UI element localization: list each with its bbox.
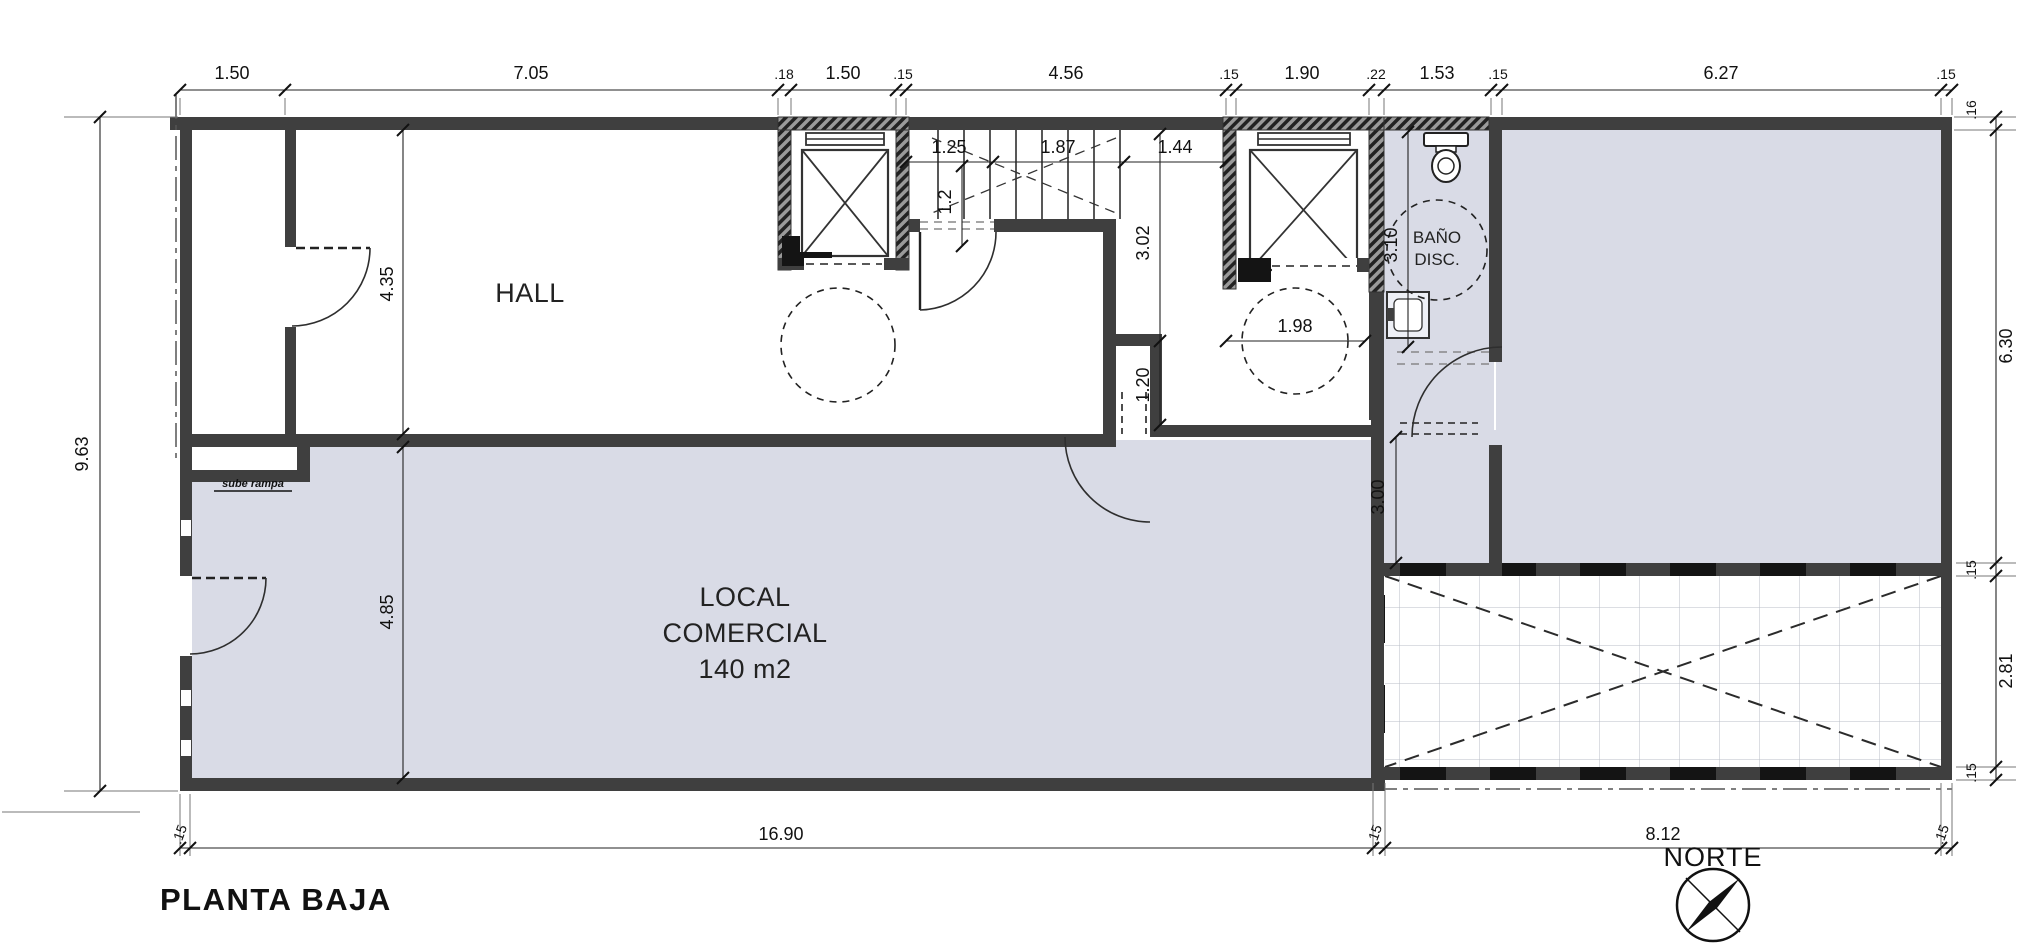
elevator2-top-wall <box>1223 117 1384 130</box>
left-wall <box>180 117 192 791</box>
dim-label: 1.50 <box>825 63 860 83</box>
dim-label: .15 <box>1936 66 1956 82</box>
dim-label: 7.05 <box>513 63 548 83</box>
local-entry-opening <box>180 576 192 656</box>
turning-circle-hall <box>781 288 895 402</box>
dimensions-left: 9.63 <box>2 111 178 812</box>
elevator2-bottom-stub <box>1357 258 1369 272</box>
stair-door-opening <box>920 219 994 232</box>
hall-door-swing <box>292 248 370 326</box>
stair-bottom-wall <box>994 219 1116 232</box>
top-wall <box>170 117 1952 130</box>
elevator1-bottom-stub-right <box>884 258 909 270</box>
elevator-1 <box>778 133 909 270</box>
dimensions-top: 1.50 7.05 .18 1.50 .15 4.56 .15 1.90 .22… <box>174 63 1958 115</box>
pocket-step-wall-h <box>1103 334 1162 346</box>
dim-label: 16.90 <box>758 824 803 844</box>
dim-label: 4.85 <box>377 594 397 629</box>
dim-label: 9.63 <box>72 436 92 471</box>
dim-label: 1.25 <box>931 137 966 157</box>
north-indicator: NORTE <box>1663 842 1762 941</box>
north-label: NORTE <box>1663 842 1762 872</box>
hall-partition-upper <box>285 130 296 247</box>
hall-partition-lower <box>285 327 296 434</box>
elevator1-right-wall <box>896 117 909 270</box>
stair-door-swing <box>920 232 996 310</box>
bath-right-wall-upper <box>1489 130 1502 362</box>
dim-label: 1.44 <box>1157 137 1192 157</box>
step-annotation: sube rampa <box>222 478 284 490</box>
bath-right-wall-lower <box>1489 445 1502 576</box>
elevator2-counterweight <box>1238 258 1271 282</box>
elevator1-top-wall <box>778 117 909 130</box>
dim-label: 1.90 <box>1284 63 1319 83</box>
stair-bottom-wall-stub <box>909 219 920 232</box>
bath-top-wall <box>1384 117 1489 130</box>
dim-label: .15 <box>1963 763 1979 783</box>
hall-local-boundary-wall <box>180 434 1116 447</box>
elevator2-opening <box>1272 258 1357 272</box>
dim-label: 1.87 <box>1040 137 1075 157</box>
dim-label: 8.12 <box>1645 824 1680 844</box>
dim-label: .22 <box>1366 66 1386 82</box>
room-label-local-1: LOCAL <box>699 582 790 612</box>
bottom-wall <box>180 778 1385 791</box>
right-section-area <box>1496 126 1946 568</box>
dim-label: .15 <box>893 66 913 82</box>
dim-label: 2.81 <box>1996 653 2016 688</box>
dim-label: .15 <box>1488 66 1508 82</box>
floor-plan: 1.50 7.05 .18 1.50 .15 4.56 .15 1.90 .22… <box>0 0 2026 950</box>
room-label-local-2: COMERCIAL <box>662 618 827 648</box>
dim-label: 1.50 <box>214 63 249 83</box>
pocket-wall-v <box>1103 219 1116 447</box>
dim-label: 6.27 <box>1703 63 1738 83</box>
dim-label: .18 <box>774 66 794 82</box>
dim-label: 3.02 <box>1133 225 1153 260</box>
dim-label: .15 <box>168 822 190 846</box>
right-wall <box>1941 117 1952 780</box>
dim-label: .15 <box>1963 560 1979 580</box>
dim-label: 1.98 <box>1277 316 1312 336</box>
dim-label: 1.2 <box>935 189 955 214</box>
dim-label: .15 <box>1930 822 1952 846</box>
elevator1-opening <box>804 258 884 270</box>
compass-icon <box>1677 869 1749 941</box>
local-right-wall <box>1371 420 1384 791</box>
elevator2-left-wall <box>1223 117 1236 289</box>
dim-label: 3.10 <box>1381 227 1401 262</box>
dim-label: .16 <box>1963 100 1979 120</box>
page-title: PLANTA BAJA <box>160 882 392 917</box>
room-label-bath-2: DISC. <box>1414 250 1459 269</box>
elevator2-right-wall <box>1369 117 1384 292</box>
room-label-hall: HALL <box>495 278 565 308</box>
dim-label: 6.30 <box>1996 328 2016 363</box>
entry-step-recess <box>192 447 297 470</box>
dim-label: 4.56 <box>1048 63 1083 83</box>
local-comercial-area <box>186 440 1376 784</box>
dim-label: .15 <box>1363 822 1385 846</box>
elevator-2 <box>1238 133 1369 282</box>
pocket-boundary-wall <box>1150 425 1375 437</box>
dim-label: .15 <box>1219 66 1239 82</box>
room-label-bath-1: BAÑO <box>1413 228 1461 247</box>
dim-label: 3.00 <box>1368 479 1388 514</box>
dim-label: 1.20 <box>1133 367 1153 402</box>
bath-left-wall-lower <box>1369 292 1384 420</box>
dim-label: 4.35 <box>377 266 397 301</box>
dimensions-right: .16 6.30 .15 2.81 .15 <box>1954 100 2016 786</box>
room-label-local-area: 140 m2 <box>698 654 791 684</box>
dim-label: 1.53 <box>1419 63 1454 83</box>
